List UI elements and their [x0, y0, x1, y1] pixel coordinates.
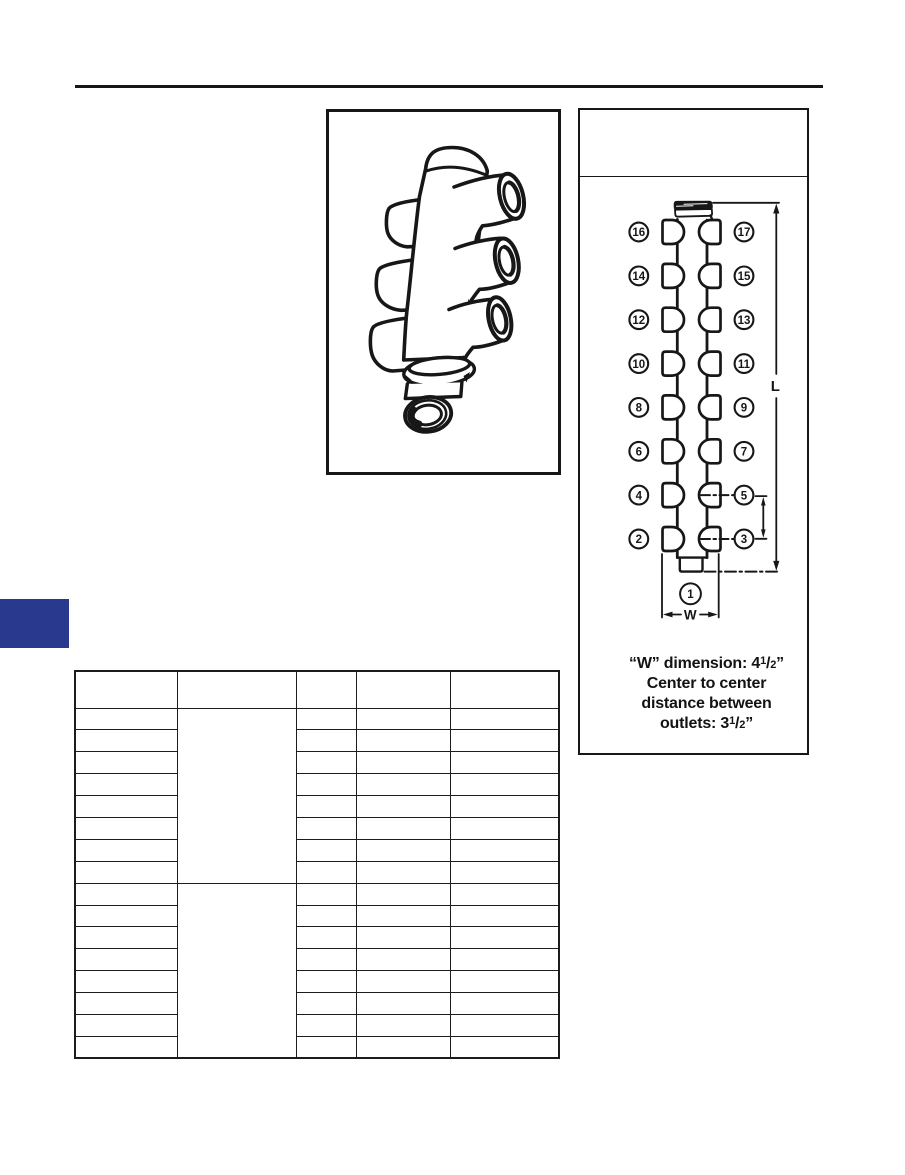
svg-text:11: 11 — [738, 359, 751, 371]
svg-text:1: 1 — [687, 589, 694, 601]
svg-text:12: 12 — [632, 315, 645, 327]
svg-text:17: 17 — [738, 227, 751, 239]
svg-text:2: 2 — [636, 534, 642, 546]
svg-text:14: 14 — [632, 271, 645, 283]
svg-text:W: W — [684, 608, 697, 623]
svg-text:13: 13 — [738, 315, 751, 327]
svg-text:L: L — [771, 378, 780, 395]
svg-text:8: 8 — [636, 403, 643, 415]
svg-text:4: 4 — [636, 490, 643, 502]
svg-text:9: 9 — [741, 403, 747, 415]
svg-text:10: 10 — [632, 359, 645, 371]
svg-text:16: 16 — [632, 227, 645, 239]
svg-text:15: 15 — [738, 271, 751, 283]
svg-text:3: 3 — [741, 534, 747, 546]
svg-text:5: 5 — [741, 490, 748, 502]
svg-text:6: 6 — [636, 447, 642, 459]
svg-text:7: 7 — [741, 447, 747, 459]
